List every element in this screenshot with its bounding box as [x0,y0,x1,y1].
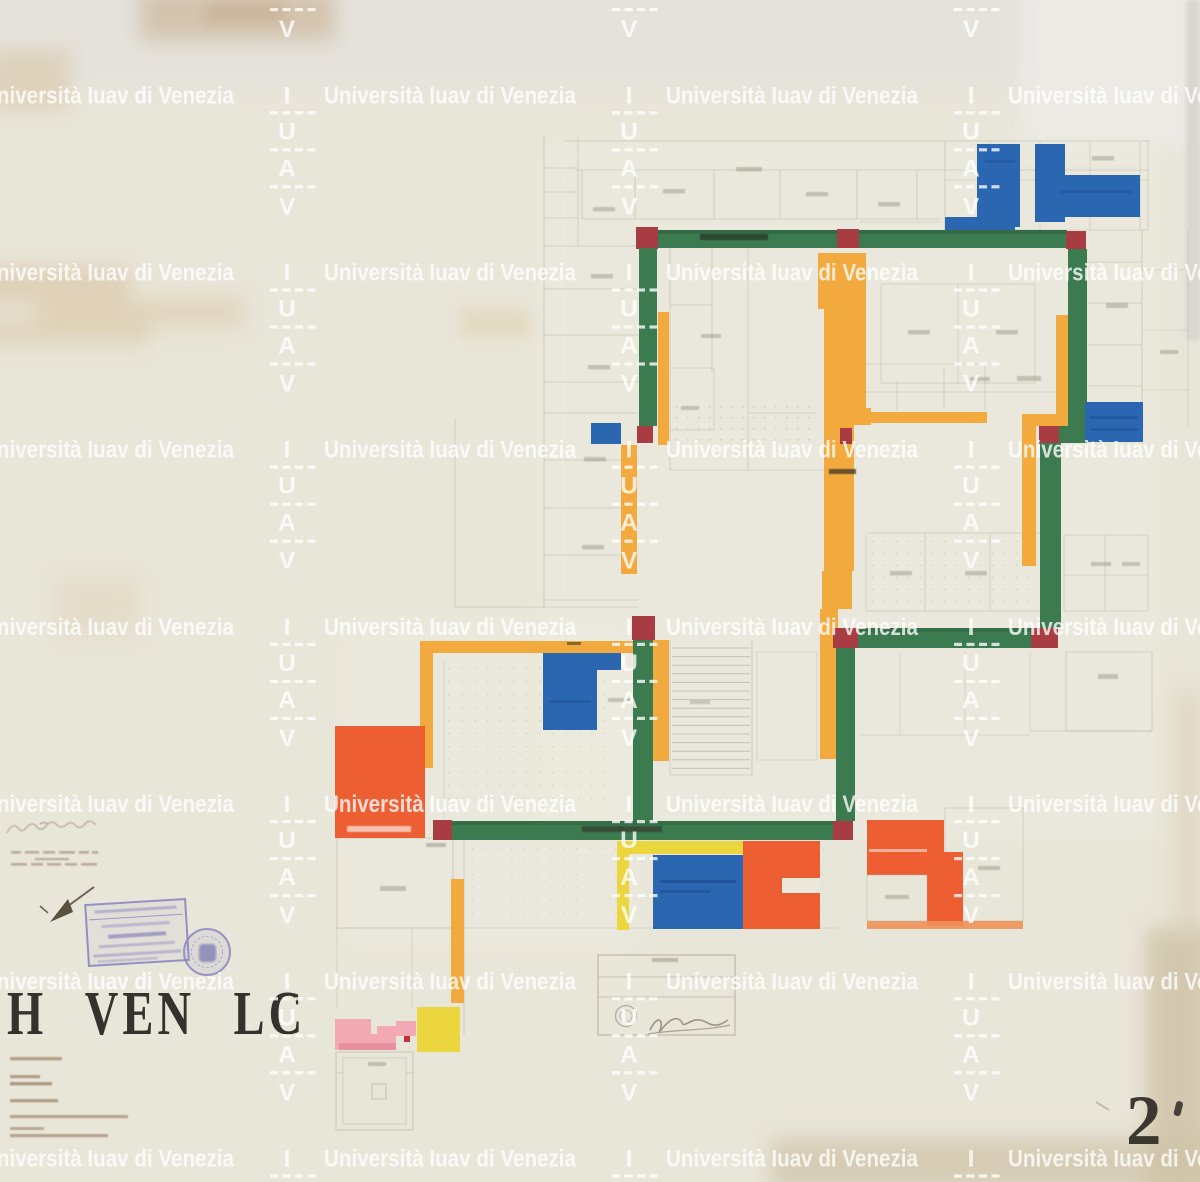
svg-text:A: A [962,155,980,182]
svg-text:Università Iuav di Venezia: Università Iuav di Venezia [0,437,234,464]
svg-text:V: V [621,548,638,575]
svg-text:V: V [279,1079,296,1106]
svg-text:Università Iuav di Venezia: Università Iuav di Venezia [666,1146,918,1173]
svg-text:V: V [963,16,980,43]
svg-text:A: A [620,333,638,360]
svg-text:A: A [620,155,638,182]
svg-text:I: I [284,82,291,109]
svg-text:Università Iuav di Venezia: Università Iuav di Venezia [324,968,576,995]
svg-text:Università Iuav di Venezia: Università Iuav di Venezia [0,260,234,287]
svg-text:I: I [284,614,291,641]
svg-text:V: V [279,725,296,752]
svg-text:U: U [620,118,638,145]
svg-text:Università Iuav di Venezia: Università Iuav di Venezia [0,614,234,641]
svg-text:Università Iuav di Venezia: Università Iuav di Venezia [324,260,576,287]
svg-text:Università Iuav di Venezia: Università Iuav di Venezia [666,437,918,464]
svg-text:A: A [962,864,980,891]
svg-text:I: I [626,968,633,995]
svg-text:I: I [626,260,633,287]
svg-text:V: V [279,16,296,43]
svg-text:U: U [962,827,980,854]
svg-text:U: U [620,296,638,323]
svg-text:Università Iuav di Venezia: Università Iuav di Venezia [1008,82,1200,109]
svg-text:Università Iuav di Venezia: Università Iuav di Venezia [666,791,918,818]
svg-text:V: V [279,902,296,929]
svg-text:I: I [284,260,291,287]
svg-text:I: I [626,82,633,109]
svg-text:U: U [620,650,638,677]
svg-text:Università Iuav di Venezia: Università Iuav di Venezia [1008,437,1200,464]
svg-text:I: I [968,260,975,287]
svg-text:V: V [621,725,638,752]
svg-text:I: I [626,614,633,641]
svg-text:Università Iuav di Venezia: Università Iuav di Venezia [0,1146,234,1173]
svg-text:I: I [968,437,975,464]
svg-text:I: I [968,1146,975,1173]
svg-text:V: V [621,193,638,220]
svg-text:I: I [626,791,633,818]
svg-text:A: A [278,510,296,537]
svg-text:I: I [284,1146,291,1173]
svg-text:Università Iuav di Venezia: Università Iuav di Venezia [666,614,918,641]
svg-text:I: I [284,968,291,995]
svg-text:I: I [968,791,975,818]
svg-text:A: A [962,0,980,5]
svg-text:A: A [962,687,980,714]
svg-text:A: A [620,0,638,5]
svg-text:I: I [284,437,291,464]
svg-text:U: U [620,827,638,854]
svg-text:A: A [278,864,296,891]
svg-text:A: A [278,155,296,182]
svg-text:Università Iuav di Venezia: Università Iuav di Venezia [0,82,234,109]
svg-text:U: U [620,473,638,500]
svg-text:A: A [962,333,980,360]
svg-text:Università Iuav di Venezia: Università Iuav di Venezia [666,82,918,109]
svg-text:V: V [279,371,296,398]
svg-text:A: A [962,510,980,537]
svg-text:Università Iuav di Venezia: Università Iuav di Venezia [0,968,234,995]
svg-text:V: V [963,371,980,398]
svg-text:V: V [963,548,980,575]
svg-text:U: U [962,650,980,677]
svg-text:Università Iuav di Venezia: Università Iuav di Venezia [1008,968,1200,995]
svg-text:V: V [621,1079,638,1106]
svg-text:Università Iuav di Venezia: Università Iuav di Venezia [1008,1146,1200,1173]
svg-text:A: A [278,687,296,714]
svg-text:Università Iuav di Venezia: Università Iuav di Venezia [1008,614,1200,641]
svg-text:Università Iuav di Venezia: Università Iuav di Venezia [666,968,918,995]
svg-text:U: U [278,650,296,677]
svg-text:V: V [279,193,296,220]
svg-text:A: A [278,1041,296,1068]
svg-text:V: V [621,371,638,398]
svg-text:Università Iuav di Venezia: Università Iuav di Venezia [324,791,576,818]
svg-text:Università Iuav di Venezia: Università Iuav di Venezia [0,791,234,818]
svg-text:A: A [620,1041,638,1068]
svg-text:U: U [962,1004,980,1031]
svg-text:U: U [278,827,296,854]
svg-text:U: U [278,473,296,500]
svg-text:A: A [620,864,638,891]
svg-text:Università Iuav di Venezia: Università Iuav di Venezia [1008,791,1200,818]
svg-text:Università Iuav di Venezia: Università Iuav di Venezia [324,614,576,641]
svg-text:U: U [962,473,980,500]
svg-text:A: A [962,1041,980,1068]
svg-text:A: A [278,0,296,5]
svg-text:U: U [278,296,296,323]
svg-text:V: V [621,16,638,43]
svg-text:I: I [626,437,633,464]
svg-text:A: A [620,687,638,714]
svg-text:U: U [962,118,980,145]
svg-text:I: I [968,968,975,995]
svg-text:Università Iuav di Venezia: Università Iuav di Venezia [1008,260,1200,287]
svg-text:A: A [620,510,638,537]
svg-text:V: V [279,548,296,575]
svg-text:V: V [963,725,980,752]
svg-text:A: A [278,333,296,360]
svg-text:I: I [284,791,291,818]
svg-text:U: U [620,1004,638,1031]
svg-text:I: I [968,82,975,109]
svg-text:U: U [278,118,296,145]
svg-text:V: V [963,193,980,220]
svg-text:Università Iuav di Venezia: Università Iuav di Venezia [324,82,576,109]
svg-text:Università Iuav di Venezia: Università Iuav di Venezia [324,1146,576,1173]
svg-text:U: U [962,296,980,323]
svg-text:I: I [968,614,975,641]
svg-text:V: V [963,1079,980,1106]
svg-text:V: V [963,902,980,929]
svg-text:U: U [278,1004,296,1031]
svg-text:Università Iuav di Venezia: Università Iuav di Venezia [324,437,576,464]
svg-text:Università Iuav di Venezia: Università Iuav di Venezia [666,260,918,287]
svg-text:I: I [626,1146,633,1173]
svg-text:V: V [621,902,638,929]
